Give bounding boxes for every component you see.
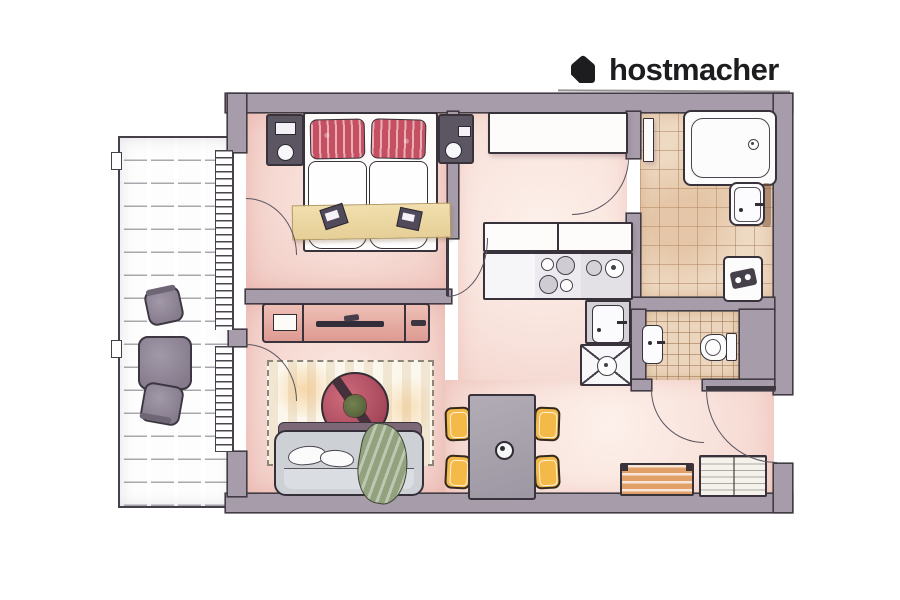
- shoe-bench: [620, 463, 694, 496]
- burner: [539, 275, 558, 294]
- chair-seat: [450, 412, 469, 439]
- balcony-chair: [139, 381, 185, 427]
- kitchen-counter-top: [483, 222, 633, 252]
- storage-box: [273, 314, 297, 331]
- wall-left-top: [228, 94, 246, 152]
- chair-seat: [449, 460, 468, 487]
- drain: [648, 341, 652, 345]
- railing-post: [111, 340, 122, 358]
- machine-dial: [744, 274, 751, 281]
- brand-logo-text: hostmacher: [609, 52, 779, 88]
- tv: [316, 321, 384, 327]
- brand-logo: hostmacher: [566, 52, 779, 88]
- nightstand-tray: [275, 122, 296, 135]
- vase: [495, 441, 514, 460]
- counter-section: [485, 254, 536, 298]
- sideboard-divider: [302, 305, 304, 341]
- burner: [556, 256, 575, 275]
- wall-right-lower: [774, 464, 792, 512]
- faucet: [617, 321, 627, 324]
- nightstand: [438, 114, 474, 164]
- hob-circle: [586, 260, 602, 276]
- burner: [541, 258, 554, 271]
- pillow: [310, 119, 366, 160]
- corner-unit: [580, 344, 632, 386]
- toilet-tank: [726, 333, 737, 361]
- chair-seat: [538, 459, 557, 486]
- stove: [535, 254, 582, 298]
- house-logo-icon: [566, 53, 600, 87]
- nightstand-tray: [458, 126, 471, 137]
- wardrobe: [488, 112, 628, 154]
- nightstand: [266, 114, 304, 166]
- vase-center: [500, 446, 505, 451]
- corner-unit-dot: [604, 363, 608, 367]
- book-page: [402, 213, 415, 222]
- toilet-bowl: [705, 339, 721, 356]
- bathtub: [683, 110, 777, 186]
- tv-sideboard: [262, 303, 430, 343]
- bench-post: [621, 464, 628, 471]
- hob-dot: [611, 265, 616, 270]
- faucet: [657, 341, 665, 344]
- washbasin: [642, 325, 663, 364]
- floorplan-canvas: hostmacher: [0, 0, 900, 600]
- dining-chair: [533, 407, 560, 442]
- chair-seat: [539, 412, 558, 439]
- wall-bedroom-living: [246, 290, 451, 303]
- sketch-line: [558, 89, 790, 92]
- wall-left-stub: [229, 330, 246, 346]
- drain: [739, 208, 743, 212]
- machine-dial: [735, 277, 742, 284]
- bathtub-inner: [691, 118, 770, 178]
- machine-panel: [730, 268, 758, 290]
- hall-shelf: [699, 455, 767, 497]
- counter-divider: [557, 224, 559, 250]
- kitchen-sink: [592, 305, 624, 343]
- sink-cabinet: [585, 300, 631, 344]
- sideboard-divider: [404, 305, 406, 341]
- bed-runner: [292, 203, 452, 241]
- lamp: [445, 142, 462, 159]
- bench-post: [686, 464, 693, 471]
- wall-left-bottom: [228, 452, 246, 496]
- railing-post: [111, 152, 122, 170]
- kitchen-lower-counter: [483, 252, 633, 300]
- dining-table: [468, 394, 536, 500]
- wall-wc-right: [740, 310, 774, 382]
- counter-section: [581, 254, 631, 298]
- balcony-table: [138, 336, 192, 390]
- book-page: [325, 210, 340, 222]
- drain-dot: [751, 142, 754, 145]
- washing-machine: [723, 256, 763, 302]
- wall-wc-hall-left: [632, 380, 651, 390]
- faucet: [755, 203, 764, 206]
- shelf-divider: [733, 457, 735, 495]
- decor-item: [411, 320, 426, 326]
- dining-chair: [533, 454, 561, 489]
- wall-shelf: [643, 118, 654, 162]
- toilet: [700, 334, 727, 361]
- balcony-window-upper: [215, 150, 233, 330]
- sofa-pillow: [319, 449, 354, 469]
- pillow: [370, 118, 426, 159]
- washbasin: [729, 182, 765, 226]
- plant: [344, 395, 366, 417]
- wall-bathroom-upper: [627, 112, 640, 158]
- sofa: [274, 426, 424, 498]
- balcony-window-lower: [215, 346, 233, 452]
- drain: [597, 328, 601, 332]
- lamp: [277, 144, 294, 161]
- burner: [560, 279, 573, 292]
